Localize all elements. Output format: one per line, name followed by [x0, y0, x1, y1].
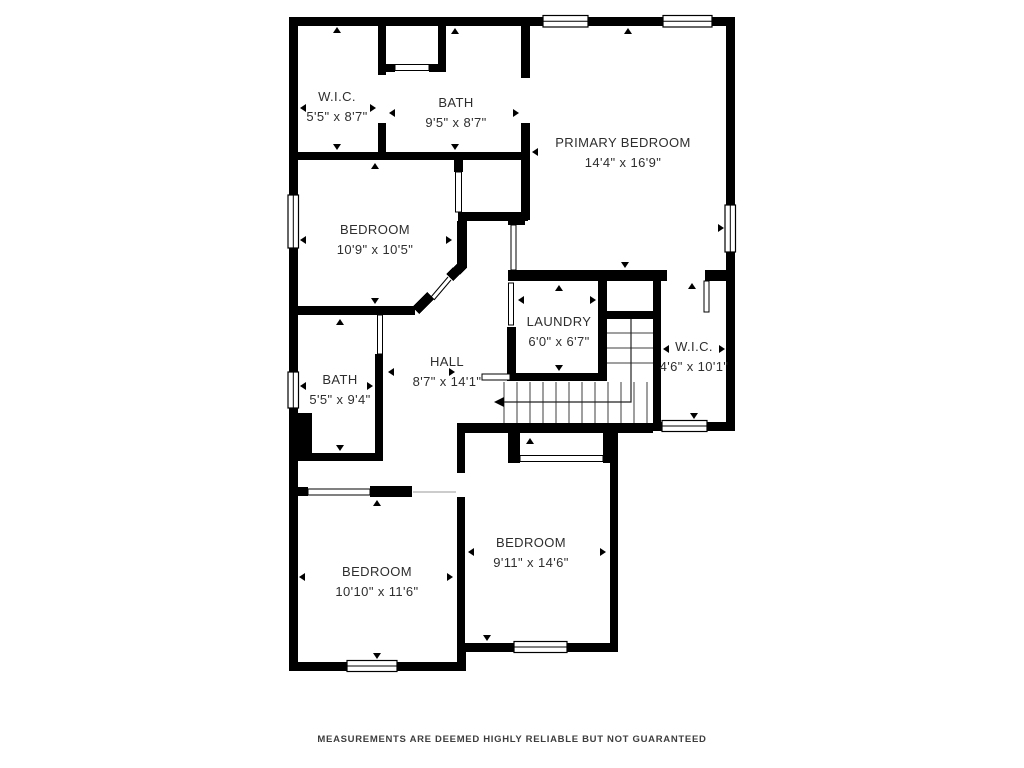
wall-segment [454, 160, 463, 172]
wall-segment [508, 270, 667, 281]
wall-segment [298, 453, 383, 461]
dim-arrow [590, 296, 596, 304]
wall-segment [604, 311, 653, 319]
wall-segment [298, 487, 308, 496]
wall-segment [508, 433, 520, 463]
room-dims: 9'5" x 8'7" [425, 113, 486, 133]
dim-arrow [336, 319, 344, 325]
door-leaf [509, 283, 514, 325]
room-label-bedroom-middle: BEDROOM 10'9" x 10'5" [337, 220, 414, 260]
room-dims: 9'11" x 14'6" [493, 553, 569, 573]
wall-segment [429, 64, 446, 72]
wall-segment [370, 486, 412, 497]
room-name: LAUNDRY [527, 312, 592, 332]
stair-direction-arrow [494, 397, 504, 407]
dim-arrow [468, 548, 474, 556]
wall-segment [457, 221, 467, 268]
dim-arrow [555, 365, 563, 371]
window [347, 661, 397, 672]
dim-arrow [555, 285, 563, 291]
wall-segment [521, 123, 530, 220]
dim-arrow [299, 573, 305, 581]
wall-segment [726, 17, 735, 206]
wall-segment [289, 306, 415, 315]
dim-arrow [451, 28, 459, 34]
window [543, 16, 588, 28]
dim-arrow [388, 368, 394, 376]
window [288, 372, 299, 408]
dim-arrow [373, 500, 381, 506]
floor-plan-drawing [0, 0, 1024, 768]
dim-arrow [370, 104, 376, 112]
dim-arrow [532, 148, 538, 156]
stair-handrail [482, 374, 510, 380]
wall-segment [507, 373, 607, 381]
dim-arrow [513, 109, 519, 117]
dim-arrow [333, 144, 341, 150]
window [514, 642, 567, 653]
room-name: HALL [413, 352, 482, 372]
wall-segment-diagonal [412, 292, 434, 314]
closet-slider [520, 456, 603, 462]
dim-arrow [621, 262, 629, 268]
room-dims: 6'0" x 6'7" [527, 332, 592, 352]
room-label-laundry: LAUNDRY 6'0" x 6'7" [527, 312, 592, 352]
floor-plan-page: W.I.C. 5'5" x 8'7" BATH 9'5" x 8'7" PRIM… [0, 0, 1024, 768]
room-name: BEDROOM [337, 220, 414, 240]
dim-arrow [518, 296, 524, 304]
room-dims: 5'5" x 8'7" [306, 107, 367, 127]
dim-arrow [373, 653, 381, 659]
dim-arrow [300, 104, 306, 112]
room-label-bedroom-bottom-left: BEDROOM 10'10" x 11'6" [335, 562, 418, 602]
wall-segment [705, 270, 727, 281]
window [662, 421, 707, 432]
dim-arrow [526, 438, 534, 444]
room-label-bedroom-bottom-right: BEDROOM 9'11" x 14'6" [493, 533, 569, 573]
door-leaf [704, 281, 709, 312]
wall-segment [508, 212, 525, 225]
room-dims: 5'5" x 9'4" [309, 390, 370, 410]
wall-segment [457, 497, 465, 662]
wall-segment [289, 17, 298, 671]
disclaimer-text: MEASUREMENTS ARE DEEMED HIGHLY RELIABLE … [0, 734, 1024, 745]
dim-arrow [336, 445, 344, 451]
dim-arrow [389, 109, 395, 117]
dim-arrow [333, 27, 341, 33]
wall-segment [598, 281, 607, 373]
room-name: BEDROOM [493, 533, 569, 553]
dim-arrow [624, 28, 632, 34]
dim-arrow [446, 236, 452, 244]
wall-segment-diagonal [446, 261, 467, 281]
wall-segment [457, 423, 653, 433]
room-name: PRIMARY BEDROOM [555, 133, 691, 153]
window [663, 16, 712, 28]
room-dims: 4'6" x 10'1" [660, 357, 729, 377]
dim-arrow [600, 548, 606, 556]
window [288, 195, 299, 248]
dim-arrow [688, 283, 696, 289]
room-name: BATH [309, 370, 370, 390]
dim-arrow [371, 298, 379, 304]
wall-segment [383, 64, 395, 72]
dim-arrow [451, 144, 459, 150]
closet-slider [456, 172, 462, 212]
window [725, 205, 736, 252]
room-label-wic-top: W.I.C. 5'5" x 8'7" [306, 87, 367, 127]
wall-segment [521, 17, 530, 78]
closet-slider [308, 489, 370, 495]
dim-arrow [447, 573, 453, 581]
room-dims: 8'7" x 14'1" [413, 372, 482, 392]
room-label-bath-left: BATH 5'5" x 9'4" [309, 370, 370, 410]
dim-arrow [300, 382, 306, 390]
dim-arrow [483, 635, 491, 641]
wall-segment [507, 327, 516, 373]
dim-arrow [300, 236, 306, 244]
door-leaf [511, 225, 516, 270]
wall-segment [438, 17, 446, 65]
room-dims: 14'4" x 16'9" [555, 153, 691, 173]
room-name: W.I.C. [306, 87, 367, 107]
dim-arrow [371, 163, 379, 169]
dim-arrow [690, 413, 698, 419]
door-leaf [378, 315, 383, 354]
room-dims: 10'9" x 10'5" [337, 240, 414, 260]
room-label-hall: HALL 8'7" x 14'1" [413, 352, 482, 392]
closet-slider [395, 65, 429, 71]
wall-segment [289, 152, 530, 160]
dim-arrow [718, 224, 724, 232]
wall-segment [293, 413, 312, 453]
room-name: BEDROOM [335, 562, 418, 582]
room-dims: 10'10" x 11'6" [335, 582, 418, 602]
room-name: W.I.C. [660, 337, 729, 357]
room-name: BATH [425, 93, 486, 113]
room-label-bath-top: BATH 9'5" x 8'7" [425, 93, 486, 133]
room-label-primary-bedroom: PRIMARY BEDROOM 14'4" x 16'9" [555, 133, 691, 173]
wall-segment [378, 123, 386, 160]
wall-segment [603, 433, 615, 463]
wall-segment [375, 354, 383, 461]
room-label-wic-right: W.I.C. 4'6" x 10'1" [660, 337, 729, 377]
